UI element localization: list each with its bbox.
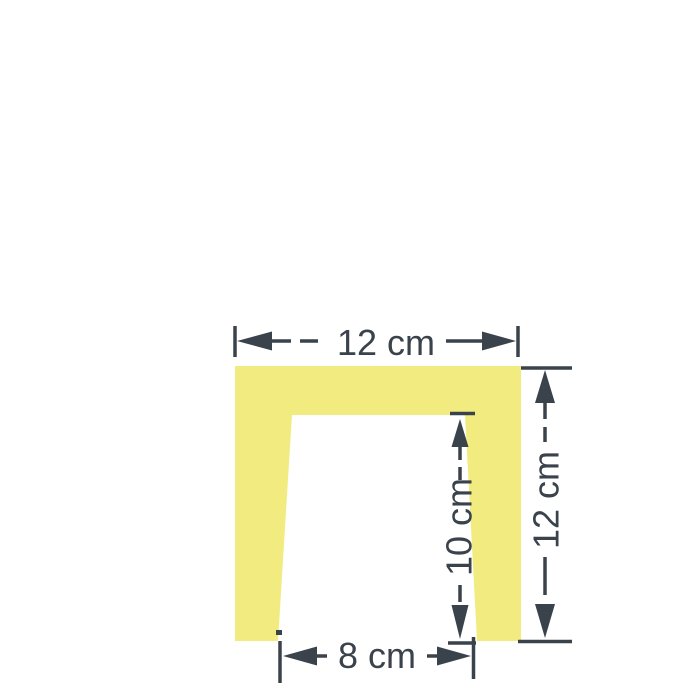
- cutout-height-label: 10 cm: [439, 478, 480, 576]
- arrow-right-icon: [482, 332, 516, 351]
- outer-width-label: 12 cm: [337, 322, 435, 363]
- outer-height-label: 12 cm: [526, 451, 567, 549]
- cutout-width-dimension: 8 cm: [276, 630, 474, 683]
- cutout-width-label: 8 cm: [338, 635, 416, 676]
- arrow-left-icon: [237, 332, 272, 351]
- arrow-left-icon: [283, 647, 317, 666]
- arrow-down-icon: [535, 604, 555, 638]
- diagram-canvas: 12 cm 12 cm 10 cm: [0, 0, 700, 700]
- geometry-diagram: 12 cm 12 cm 10 cm: [0, 0, 700, 700]
- top-width-dimension: 12 cm: [235, 322, 518, 363]
- corner-mark: [276, 630, 282, 635]
- arrow-up-icon: [535, 370, 555, 403]
- arrow-right-icon: [437, 647, 471, 666]
- arrow-down-icon: [452, 605, 469, 639]
- right-height-dimension: 12 cm: [518, 368, 572, 642]
